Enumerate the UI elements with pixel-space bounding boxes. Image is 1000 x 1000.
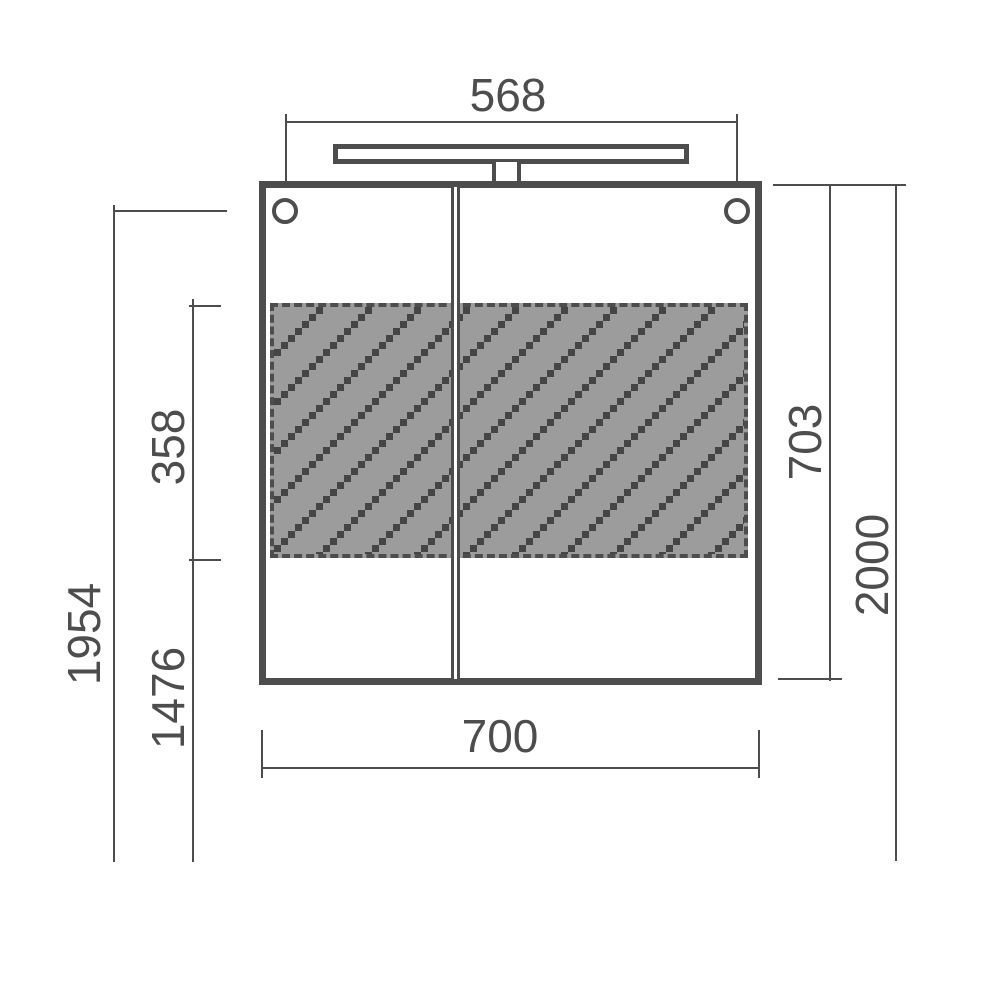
dim-1954-top-extension xyxy=(113,210,227,212)
dimension-drawing: 568 1954 xyxy=(0,0,1000,1000)
dim-right-top-extension xyxy=(773,184,906,186)
dim-358-1476-line xyxy=(192,299,194,862)
dim-568-extension-left xyxy=(285,114,287,181)
dim-358-top-tick xyxy=(189,305,221,307)
light-fixture-stem xyxy=(492,162,521,182)
dim-703-bottom-tick xyxy=(778,678,842,680)
dim-700-line xyxy=(261,767,760,769)
dim-2000-label: 2000 xyxy=(849,514,895,616)
dim-1476-label: 1476 xyxy=(145,647,191,749)
door-divider xyxy=(451,187,460,679)
dim-568-label: 568 xyxy=(470,72,547,118)
dim-700-extension-right xyxy=(758,730,760,778)
dim-358-bottom-tick xyxy=(189,559,221,561)
mounting-hole-right-icon xyxy=(724,198,750,224)
hatched-mirror-area xyxy=(270,303,748,558)
dim-358-label: 358 xyxy=(145,409,191,486)
mounting-hole-left-icon xyxy=(272,198,298,224)
dim-568-extension-right xyxy=(736,114,738,181)
dim-703-label: 703 xyxy=(782,404,828,481)
light-fixture-bar xyxy=(333,144,689,164)
diagonal-hatch-pattern xyxy=(274,307,744,554)
dim-1954-label: 1954 xyxy=(61,583,107,685)
dim-568-line xyxy=(285,121,738,123)
dim-1954-line xyxy=(113,205,115,862)
dim-700-label: 700 xyxy=(462,713,539,759)
dim-700-extension-left xyxy=(261,730,263,778)
